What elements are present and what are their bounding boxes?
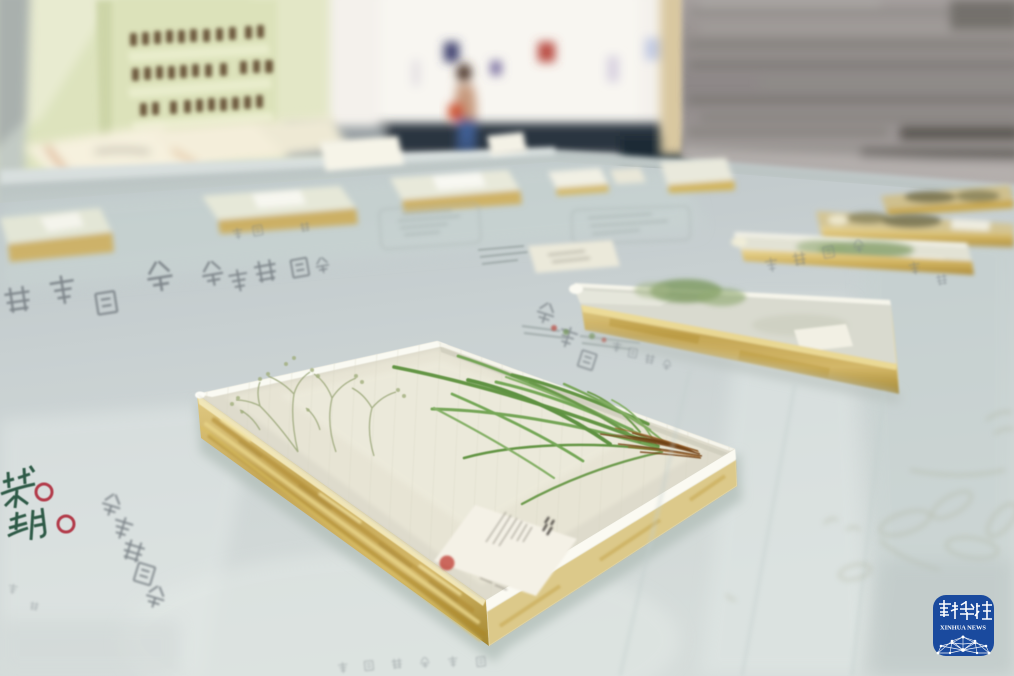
svg-text:XINHUA NEWS: XINHUA NEWS [940,625,986,632]
